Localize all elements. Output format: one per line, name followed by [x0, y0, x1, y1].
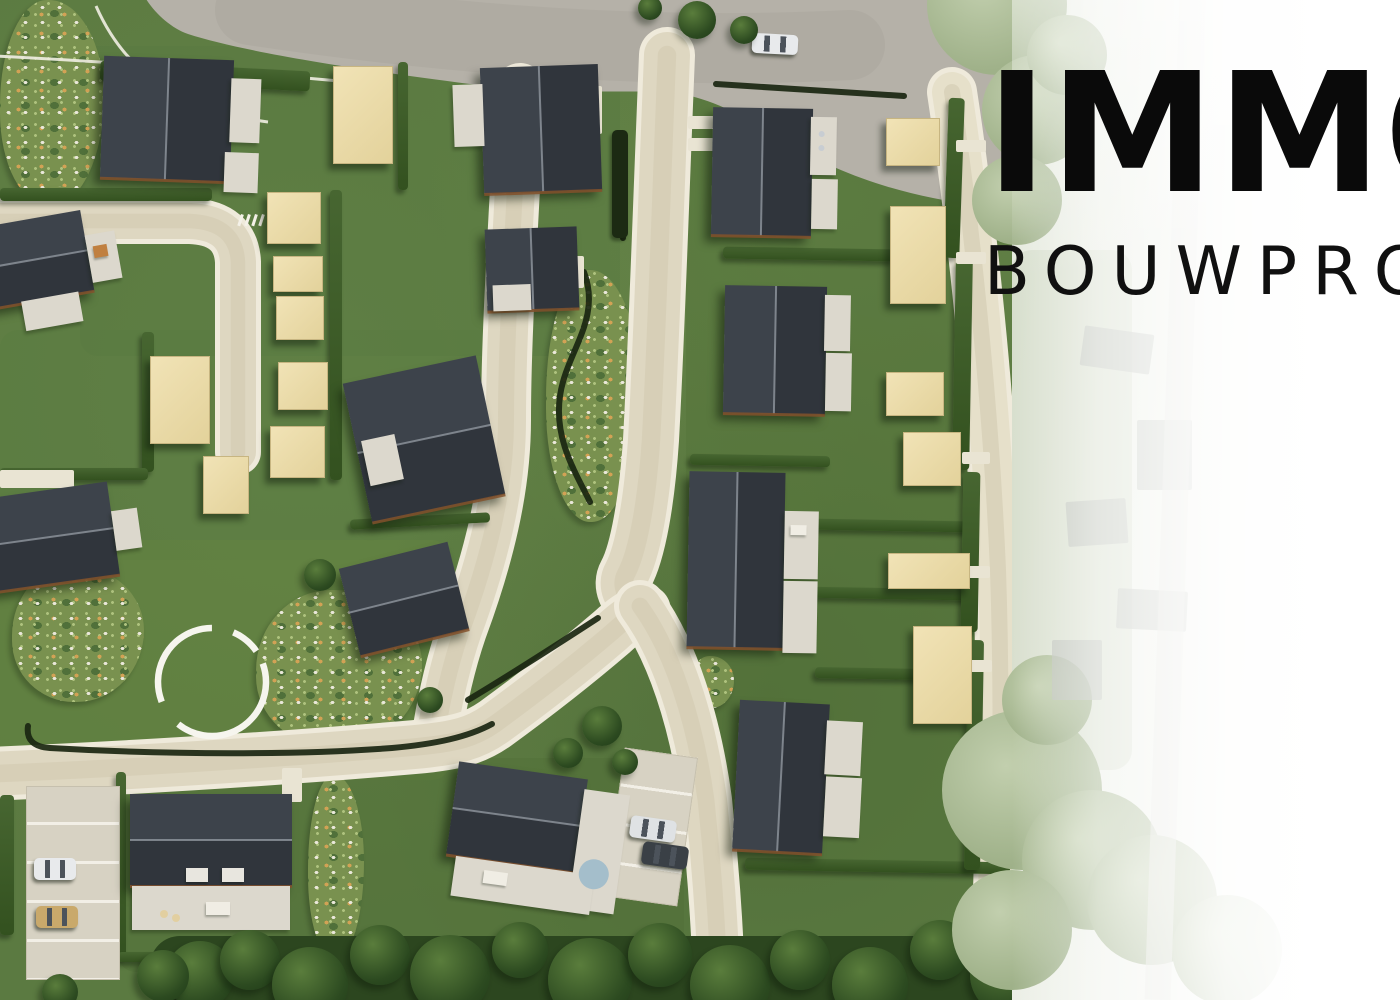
crosswalk-tick: [251, 214, 258, 226]
car-windows: [639, 818, 667, 839]
logo-wordmark-clipped-letter: O: [1384, 38, 1400, 231]
terrace: [493, 284, 532, 311]
roof-ridge: [538, 66, 544, 192]
house-detail: [790, 525, 806, 535]
car-windows: [43, 860, 67, 878]
house-west-edge-1: [0, 210, 94, 308]
shed-row-1: [267, 192, 321, 244]
logo-wordmark: IMMO: [986, 52, 1400, 218]
paved-patch: [0, 470, 74, 488]
house-s-semi: [446, 761, 588, 872]
roof: [446, 761, 588, 872]
shed-mid-b: [203, 456, 249, 514]
terrace: [824, 295, 851, 351]
roof: [0, 482, 120, 593]
paved-patch: [956, 140, 986, 152]
house-detail: [186, 868, 208, 882]
house-detail: [172, 914, 180, 922]
terrace: [452, 84, 484, 147]
logo-subtitle-text: BOUWPR: [984, 232, 1374, 310]
terrace: [824, 720, 863, 776]
roof-ridge: [349, 584, 458, 613]
logo-subtitle: BOUWPRO: [984, 238, 1400, 305]
roof: [723, 285, 827, 415]
paved-patch: [688, 138, 714, 151]
house-center: [343, 355, 506, 522]
car-parking-white: [34, 858, 76, 880]
tree: [730, 16, 758, 44]
house-e2: [723, 285, 827, 415]
shed-row-5: [270, 426, 325, 478]
garage-e1: [886, 118, 940, 166]
house-detail: [818, 145, 824, 151]
roof: [100, 56, 234, 182]
hedge-row: [398, 62, 408, 190]
terrace: [825, 353, 852, 411]
roof-ridge: [773, 286, 777, 414]
tree: [553, 738, 583, 768]
hedge-row: [815, 667, 921, 680]
house-e4: [732, 700, 830, 855]
tree: [492, 922, 548, 978]
roof: [686, 471, 785, 649]
house-e1: [711, 107, 813, 237]
house-detail: [206, 902, 230, 915]
tree: [628, 923, 692, 987]
shed-n: [333, 66, 393, 164]
car-windows: [762, 35, 789, 52]
roof: [480, 64, 602, 194]
garage-e4: [903, 432, 961, 486]
tree: [582, 706, 622, 746]
roof-ridge: [452, 807, 581, 827]
tree: [304, 559, 336, 591]
shed-row-2: [273, 256, 323, 292]
hedge-row: [961, 472, 981, 632]
hedge-row: [330, 190, 342, 480]
house-west-edge-2: [0, 482, 120, 593]
tree: [417, 687, 443, 713]
house-detail: [222, 868, 244, 882]
roof: [0, 210, 94, 308]
garage-e2: [890, 206, 946, 304]
car-top-road: [752, 33, 799, 55]
terrace: [782, 581, 817, 654]
tree: [612, 749, 638, 775]
house-detail: [819, 131, 825, 137]
terrace: [223, 152, 258, 193]
dark-hedge: [612, 130, 628, 238]
garage-e3: [886, 372, 944, 416]
house-sw-semi: [130, 794, 292, 886]
roof-ridge: [760, 108, 764, 236]
logo-wordmark-text: IMM: [986, 38, 1384, 231]
roof-ridge: [130, 839, 292, 841]
hedge-row: [0, 188, 212, 201]
hedge-row: [0, 795, 14, 935]
tree: [770, 930, 830, 990]
roof-ridge: [776, 702, 786, 852]
paved-patch: [688, 116, 714, 129]
paved-patch: [962, 452, 990, 464]
tree: [137, 950, 189, 1000]
car-windows: [45, 908, 69, 926]
roof-ridge: [733, 472, 738, 648]
crosswalk-tick: [258, 214, 265, 226]
house-detail: [93, 244, 109, 258]
garage-e6: [913, 626, 972, 724]
terrace: [111, 508, 142, 551]
roof: [711, 107, 813, 237]
house-e3: [686, 471, 785, 649]
park-circle-path: [143, 613, 281, 751]
roof-ridge: [0, 527, 114, 547]
logo-subtitle-clipped-letter: O: [1374, 232, 1400, 310]
paved-patch: [956, 252, 986, 264]
tree: [350, 925, 410, 985]
tree: [678, 1, 716, 39]
parking-sw: [26, 786, 120, 980]
roof: [130, 794, 292, 886]
terrace: [823, 776, 862, 838]
shed-mid-a: [150, 356, 210, 444]
house-nw: [100, 56, 234, 182]
tree: [220, 930, 280, 990]
shed-row-4: [278, 362, 328, 410]
roof: [732, 700, 830, 855]
house-detail: [160, 910, 168, 918]
terrace: [811, 179, 838, 229]
garage-e5: [888, 553, 970, 589]
car-parking-tan: [36, 906, 78, 928]
site-plan-render: IMMO BOUWPRO: [0, 0, 1400, 1000]
roof-ridge: [164, 58, 170, 180]
shed-row-3: [276, 296, 324, 340]
house-n-mid: [480, 64, 602, 194]
terrace: [229, 78, 261, 143]
roof-ridge: [0, 249, 87, 268]
car-windows: [651, 844, 679, 866]
house-small-mid: [485, 226, 580, 311]
terrace: [784, 511, 819, 580]
